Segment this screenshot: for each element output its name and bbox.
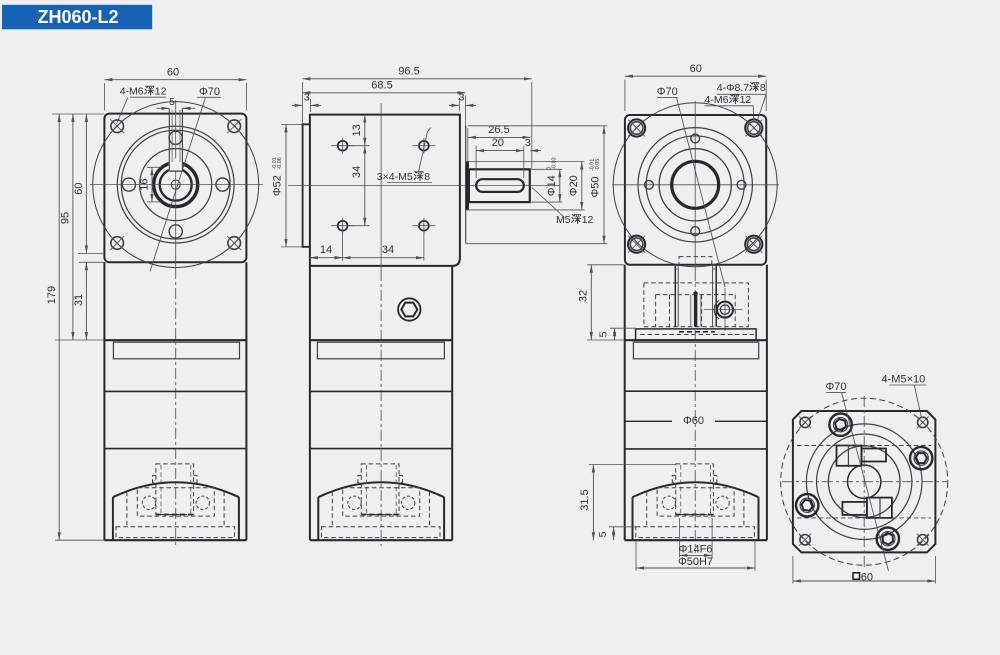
svg-text:14: 14 (320, 244, 332, 256)
svg-text:34: 34 (351, 166, 363, 178)
svg-text:Φ14F6: Φ14F6 (679, 543, 713, 555)
svg-text:60: 60 (73, 182, 85, 194)
svg-text:32: 32 (577, 290, 589, 302)
svg-text:4-M6: 4-M6 (120, 86, 144, 98)
svg-text:20: 20 (492, 137, 504, 149)
svg-text:Φ50: Φ50 (589, 176, 601, 197)
svg-text:68.5: 68.5 (371, 79, 392, 91)
svg-text:60: 60 (861, 571, 873, 583)
svg-text:8: 8 (760, 82, 766, 94)
svg-text:3×4-M5: 3×4-M5 (377, 171, 413, 183)
svg-text:31: 31 (73, 294, 85, 306)
svg-text:4-M5×10: 4-M5×10 (882, 373, 926, 385)
svg-text:12: 12 (155, 86, 167, 98)
svg-text:31.5: 31.5 (579, 489, 591, 510)
svg-text:13: 13 (351, 124, 363, 136)
svg-text:179: 179 (46, 286, 58, 304)
svg-text:3: 3 (525, 137, 531, 149)
svg-text:8: 8 (424, 171, 430, 183)
svg-text:-0.03: -0.03 (552, 157, 558, 169)
svg-text:12: 12 (740, 94, 752, 106)
svg-text:96.5: 96.5 (398, 65, 419, 77)
svg-text:16: 16 (139, 178, 151, 190)
svg-text:Φ70: Φ70 (825, 381, 846, 393)
svg-text:Φ70: Φ70 (199, 86, 220, 98)
svg-text:ZH060-L2: ZH060-L2 (37, 7, 118, 27)
svg-text:12: 12 (582, 214, 594, 226)
svg-text:3: 3 (304, 92, 310, 104)
svg-text:4-Φ8.7: 4-Φ8.7 (717, 82, 749, 94)
svg-text:5: 5 (597, 531, 609, 537)
svg-text:3: 3 (459, 92, 465, 104)
svg-text:-0.06: -0.06 (277, 157, 283, 169)
svg-text:5: 5 (169, 96, 175, 108)
svg-text:Φ70: Φ70 (657, 86, 678, 98)
svg-text:-0.05: -0.05 (595, 159, 601, 171)
svg-text:60: 60 (690, 63, 702, 75)
svg-text:Φ20: Φ20 (568, 175, 580, 196)
svg-text:Φ60: Φ60 (683, 415, 704, 427)
svg-text:34: 34 (382, 244, 394, 256)
svg-text:5: 5 (598, 331, 610, 337)
svg-text:Φ14: Φ14 (546, 175, 558, 196)
svg-text:Φ50H7: Φ50H7 (678, 556, 713, 568)
svg-text:26.5: 26.5 (488, 124, 509, 136)
svg-text:M5: M5 (556, 214, 571, 226)
svg-text:4-M6: 4-M6 (705, 94, 729, 106)
svg-text:95: 95 (60, 212, 72, 224)
svg-text:60: 60 (167, 67, 179, 79)
svg-text:Φ52: Φ52 (272, 175, 284, 196)
